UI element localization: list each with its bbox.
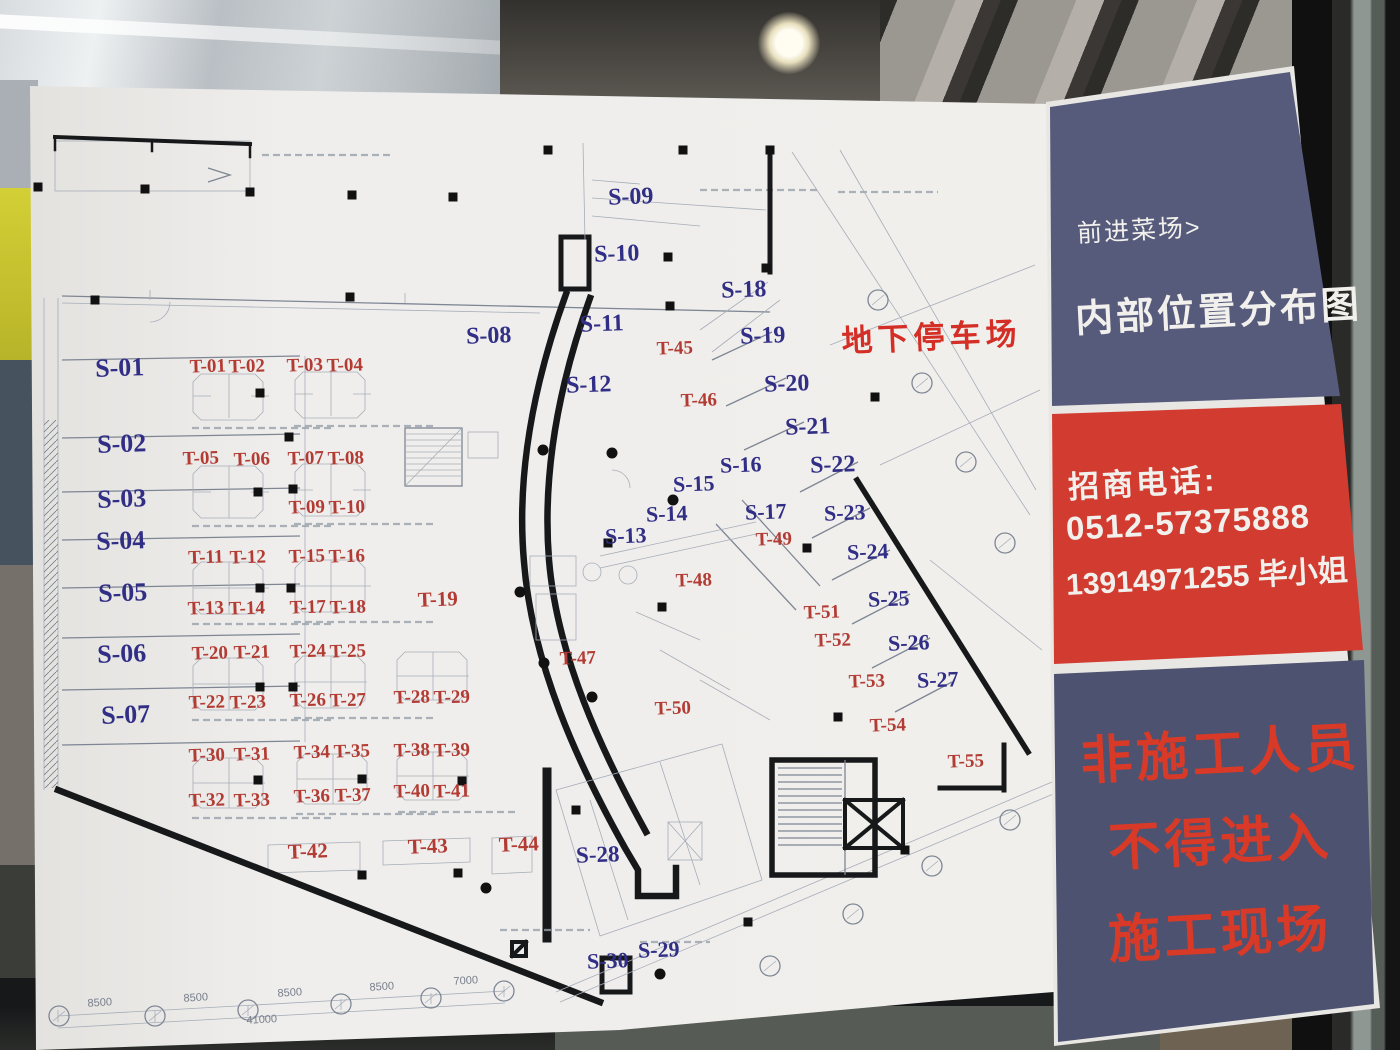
round-column — [515, 587, 526, 598]
stall-label: T-48 — [675, 569, 712, 591]
venue-label: 前进菜场> — [1076, 208, 1202, 250]
column-marker — [803, 544, 812, 553]
stall-label: S-20 — [764, 370, 810, 398]
stall-label: S-27 — [917, 666, 959, 692]
stall-label: T-15 — [288, 545, 325, 567]
stall-label: S-09 — [608, 183, 654, 211]
stall-label: T-26 — [289, 689, 326, 711]
stall-label: T-11 — [188, 546, 224, 568]
stall-label: S-19 — [740, 322, 786, 350]
stall-label: T-40 — [393, 780, 430, 802]
stall-label: S-01 — [95, 352, 145, 383]
column-marker — [91, 296, 100, 305]
column-marker — [664, 253, 673, 262]
stall-label: T-54 — [869, 714, 906, 736]
stall-label: T-13 — [187, 597, 224, 619]
stall-label: S-05 — [98, 577, 148, 608]
stall-label: S-22 — [810, 451, 856, 479]
round-column — [538, 445, 549, 456]
stall-label: T-17 — [289, 596, 326, 618]
column-marker — [572, 806, 581, 815]
stall-label: T-39 — [433, 739, 470, 761]
contact-heading: 招商电话: — [1067, 454, 1218, 507]
stall-label: T-43 — [407, 833, 448, 858]
column-marker — [254, 776, 263, 785]
stall-label: S-17 — [745, 498, 787, 524]
stall-label: T-55 — [947, 750, 984, 772]
stall-label: S-03 — [97, 483, 147, 514]
stall-label: S-18 — [721, 276, 767, 304]
stall-label: T-09 — [288, 496, 325, 518]
stall-label: T-19 — [417, 586, 458, 611]
dimension-label: 8500 — [183, 991, 208, 1004]
stall-label: S-08 — [466, 322, 512, 350]
column-marker — [834, 713, 843, 722]
stall-label: S-02 — [97, 428, 147, 459]
stall-label: T-51 — [803, 601, 840, 623]
column-marker — [256, 389, 265, 398]
stall-label: T-45 — [656, 337, 693, 359]
column-marker — [34, 183, 43, 192]
stall-label: T-32 — [188, 789, 225, 811]
column-marker — [871, 393, 880, 402]
stall-label: S-04 — [96, 525, 146, 556]
column-marker — [744, 918, 753, 927]
stall-label: T-25 — [329, 640, 366, 662]
stall-label: T-38 — [393, 739, 430, 761]
stall-label: T-46 — [680, 389, 717, 411]
stall-label: T-30 — [188, 744, 225, 766]
stall-label: S-24 — [847, 538, 889, 564]
stall-label: T-08 — [327, 447, 364, 469]
stall-label: T-52 — [814, 629, 851, 651]
column-marker — [449, 193, 458, 202]
column-marker — [246, 188, 255, 197]
column-marker — [358, 871, 367, 880]
stall-label: T-23 — [229, 691, 266, 713]
column-marker — [358, 775, 367, 784]
stall-label: T-02 — [228, 355, 265, 377]
stall-label: T-21 — [233, 641, 270, 663]
column-marker — [256, 584, 265, 593]
stall-label: S-30 — [587, 947, 629, 973]
stall-label: T-47 — [559, 647, 596, 669]
column-marker — [666, 302, 675, 311]
stall-label: T-16 — [328, 545, 365, 567]
dimension-label: 8500 — [87, 996, 112, 1009]
round-column — [539, 658, 550, 669]
column-marker — [254, 488, 263, 497]
stall-label: S-07 — [101, 699, 151, 730]
stall-label: T-36 — [293, 785, 330, 807]
column-marker — [285, 433, 294, 442]
stall-label: S-11 — [579, 310, 624, 338]
stall-label: T-49 — [755, 528, 792, 550]
stall-label: S-16 — [720, 451, 762, 477]
stall-label: T-22 — [188, 691, 225, 713]
stall-label: T-14 — [228, 597, 265, 619]
round-column — [655, 969, 666, 980]
stall-label: S-13 — [605, 522, 647, 548]
column-marker — [348, 191, 357, 200]
column-marker — [289, 485, 298, 494]
plan-sheet — [30, 86, 1054, 1050]
stall-label: T-31 — [233, 743, 270, 765]
round-column — [587, 692, 598, 703]
stall-label: T-12 — [229, 546, 266, 568]
column-marker — [658, 603, 667, 612]
dimension-label: 8500 — [277, 986, 302, 999]
column-marker — [141, 185, 150, 194]
column-marker — [679, 146, 688, 155]
column-marker — [762, 264, 771, 273]
stall-label: T-44 — [498, 831, 539, 856]
stall-label: S-06 — [97, 638, 147, 669]
photo-of-floorplan-sign: 8500850085008500700041000 S-01S-02S-03S-… — [0, 0, 1400, 1050]
column-marker — [346, 293, 355, 302]
stall-label: S-29 — [638, 936, 680, 962]
stall-label: S-15 — [673, 470, 715, 496]
stall-label: T-06 — [233, 448, 270, 470]
column-marker — [766, 146, 775, 155]
stall-label: T-01 — [189, 355, 226, 377]
stall-label: T-18 — [329, 596, 366, 618]
stall-label: S-28 — [576, 841, 620, 868]
stall-label: T-27 — [329, 689, 366, 711]
stall-label: T-37 — [334, 784, 371, 806]
stall-label: S-26 — [888, 629, 930, 655]
stall-label: S-10 — [594, 240, 640, 268]
column-marker — [454, 869, 463, 878]
stall-label: T-33 — [233, 789, 270, 811]
stall-label: T-29 — [433, 686, 470, 708]
dimension-label: 8500 — [369, 980, 394, 993]
stall-label: T-41 — [433, 780, 470, 802]
stall-label: T-53 — [848, 670, 885, 692]
column-marker — [256, 683, 265, 692]
round-column — [481, 883, 492, 894]
stall-label: S-21 — [785, 413, 831, 441]
stall-label: T-28 — [393, 686, 430, 708]
stall-label: T-42 — [287, 838, 328, 863]
stall-label: T-24 — [289, 640, 326, 662]
dimension-label: 41000 — [246, 1013, 277, 1027]
dimension-label: 7000 — [453, 974, 478, 987]
stall-label: T-05 — [182, 447, 219, 469]
stall-label: S-25 — [868, 585, 910, 611]
stall-label: S-23 — [824, 499, 866, 525]
stall-label: T-07 — [287, 447, 324, 469]
column-marker — [544, 146, 553, 155]
column-marker — [287, 584, 296, 593]
stall-label: T-20 — [191, 642, 228, 664]
stall-label: S-14 — [646, 500, 688, 526]
stall-label: T-35 — [333, 740, 370, 762]
stall-label: T-03 — [286, 354, 323, 376]
stall-label: T-34 — [293, 741, 330, 763]
stall-label: T-04 — [326, 354, 363, 376]
stall-label: T-50 — [654, 697, 691, 719]
round-column — [607, 448, 618, 459]
stall-label: S-12 — [566, 371, 612, 399]
column-marker — [901, 846, 910, 855]
stall-label: T-10 — [328, 496, 365, 518]
